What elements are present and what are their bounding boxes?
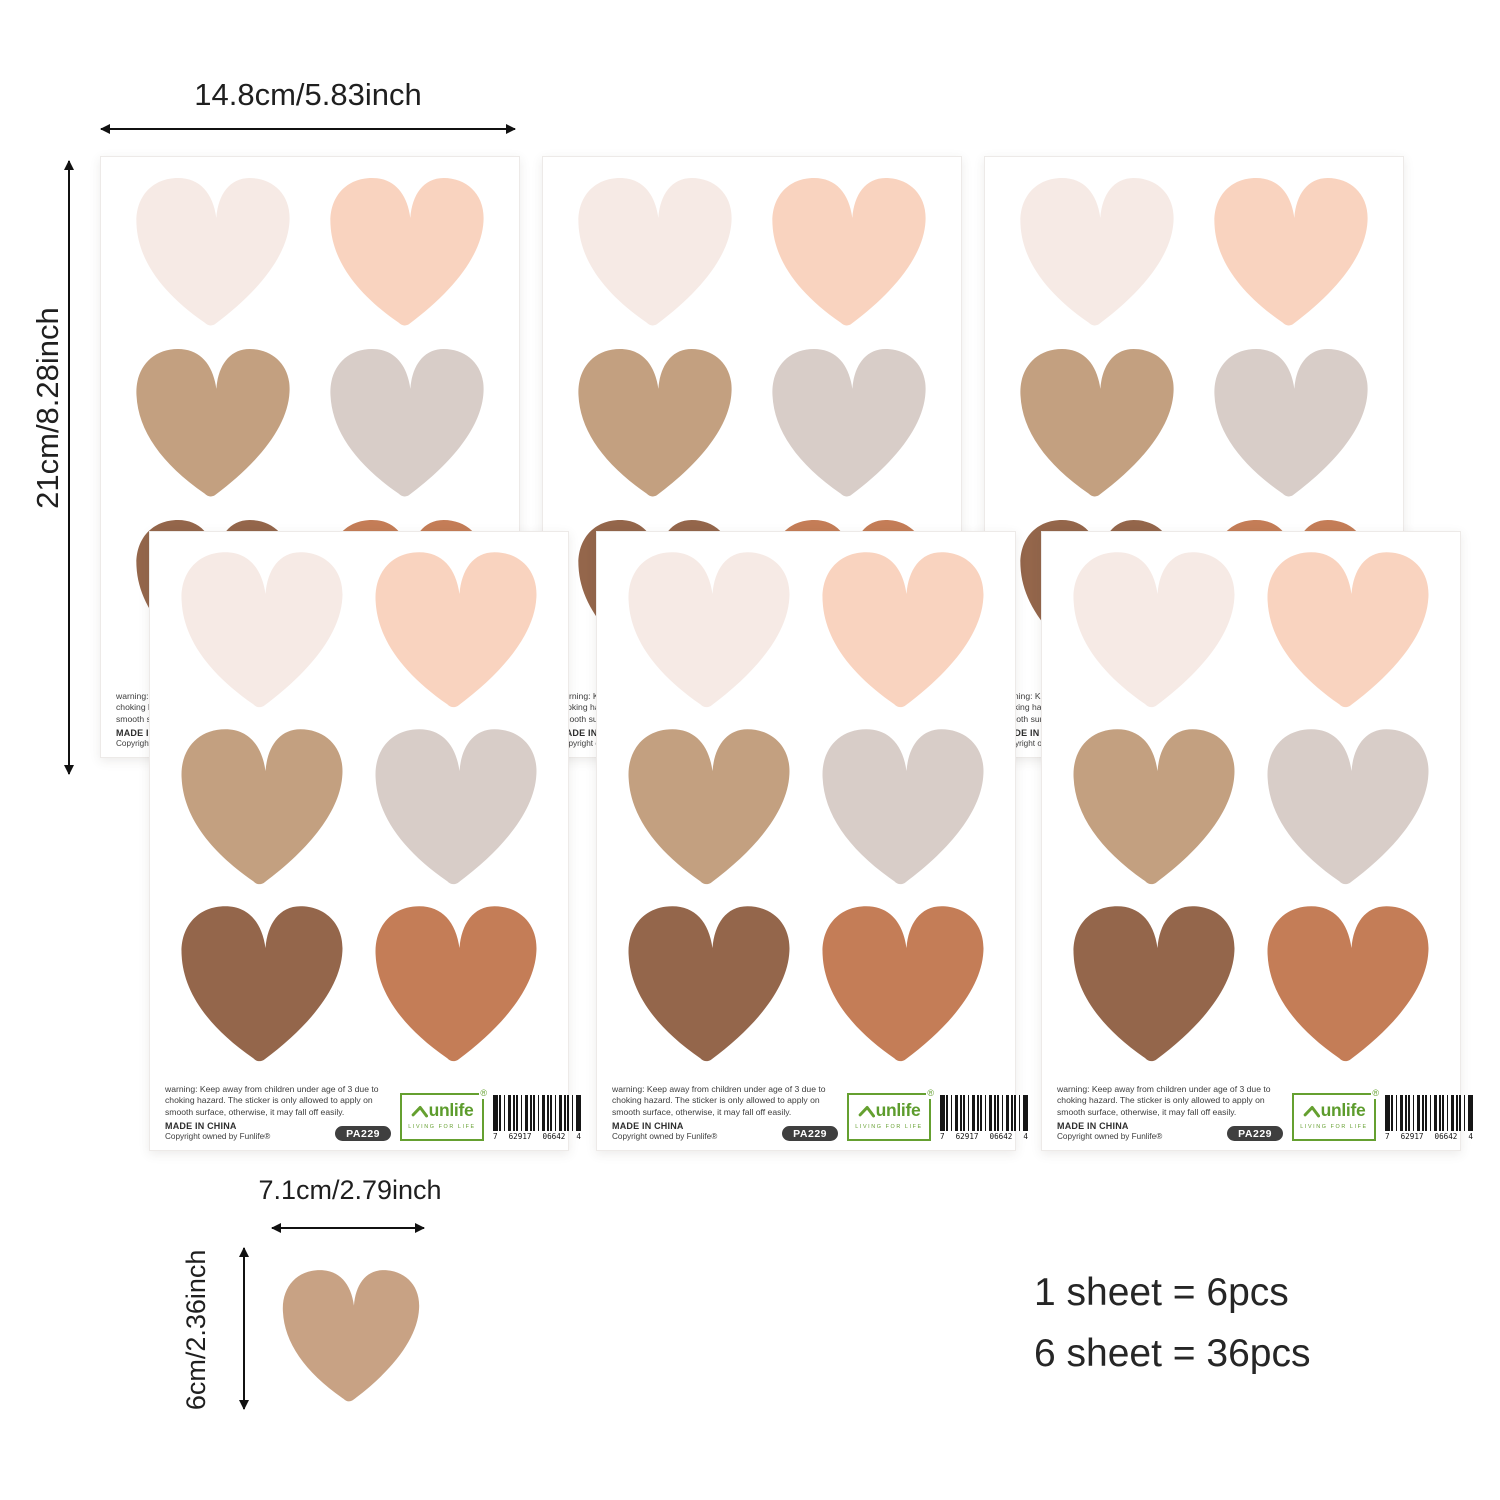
sheet-footer: warning: Keep away from children under a… [1042,1072,1460,1150]
heart-sticker-brown [1066,901,1242,1067]
heart-shape [376,906,537,1061]
made-in-china-text: MADE IN CHINA [612,1121,717,1131]
funlife-logo: ® unlife LIVING FOR LIFE [400,1093,484,1141]
barcode-digit-group: 62917 [956,1132,979,1141]
heart-sticker-cream [127,173,299,331]
heart-shape [330,178,483,325]
roof-icon [1303,1104,1320,1118]
sticker-sheet-front-3: warning: Keep away from children under a… [1041,531,1461,1151]
heart-sticker-terracotta [1260,901,1436,1067]
heart-shape [1074,553,1235,708]
copyright-text: Copyright owned by Funlife® [612,1132,717,1141]
heart-sticker-terracotta [815,901,991,1067]
heart-sticker-tan [127,344,299,502]
barcode-bars [493,1095,581,1131]
copyright-text: Copyright owned by Funlife® [165,1132,270,1141]
heart-sticker-grid [597,532,1015,1072]
heart-sticker-cream [1066,547,1242,713]
heart-shape [629,729,790,884]
heart-shape [823,906,984,1061]
heart-sticker-tan [1066,724,1242,890]
footer-text-block: warning: Keep away from children under a… [612,1084,838,1141]
heart-sticker-greige [1260,724,1436,890]
heart-shape [823,553,984,708]
barcode-digit-group: 4 [576,1132,581,1141]
registered-mark: ® [1371,1088,1380,1099]
sticker-sheet-front-2: warning: Keep away from children under a… [596,531,1016,1151]
footer-text-block: warning: Keep away from children under a… [1057,1084,1283,1141]
heart-shape [772,178,925,325]
heart-sticker-grid [150,532,568,1072]
heart-sticker-tan [174,724,350,890]
heart-shape [1020,349,1173,496]
barcode-digit-group: 4 [1468,1132,1473,1141]
barcode-digit-group: 62917 [509,1132,532,1141]
barcode-digit-group: 06642 [543,1132,566,1141]
heart-sticker-brown [621,901,797,1067]
made-in-china-text: MADE IN CHINA [1057,1121,1162,1131]
heart-sticker-greige [815,724,991,890]
sheet-height-arrow [68,161,70,774]
heart-sticker-peach [763,173,935,331]
product-image-canvas: 14.8cm/5.83inch 21cm/8.28inch warning: K… [0,0,1500,1500]
heart-sticker-tan [569,344,741,502]
heart-shape [376,729,537,884]
barcode-digit-group: 06642 [990,1132,1013,1141]
barcode-digit-group: 62917 [1401,1132,1424,1141]
heart-sticker-peach [1205,173,1377,331]
heart-shape [1268,553,1429,708]
barcode-digits: 7 62917 06642 4 [940,1132,1028,1141]
brand-name: unlife [429,1100,474,1121]
heart-sticker-peach [321,173,493,331]
heart-shape [182,553,343,708]
heart-sticker-greige [321,344,493,502]
barcode-digit-group: 7 [493,1132,498,1141]
barcode: 7 62917 06642 4 [1385,1095,1473,1141]
heart-sticker-terracotta [368,901,544,1067]
roof-icon [858,1104,875,1118]
barcode-digits: 7 62917 06642 4 [1385,1132,1473,1141]
roof-icon [411,1104,428,1118]
heart-shape [629,906,790,1061]
heart-sticker-tan [621,724,797,890]
heart-shape [182,906,343,1061]
heart-sticker-greige [763,344,935,502]
heart-shape [182,729,343,884]
barcode-bars [1385,1095,1473,1131]
heart-shape [629,553,790,708]
heart-sticker-greige [368,724,544,890]
brand-tagline: LIVING FOR LIFE [402,1124,482,1130]
funlife-logo: ® unlife LIVING FOR LIFE [1292,1093,1376,1141]
heart-sticker-brown [174,901,350,1067]
footer-text-block: warning: Keep away from children under a… [165,1084,391,1141]
heart-shape [772,349,925,496]
heart-sticker-peach [368,547,544,713]
heart-shape [823,729,984,884]
heart-shape [1074,729,1235,884]
heart-shape [1074,906,1235,1061]
brand-name: unlife [1321,1100,1366,1121]
heart-shape [578,349,731,496]
product-code-badge: PA229 [1227,1126,1283,1141]
sheet-width-label: 14.8cm/5.83inch [100,78,516,112]
heart-width-label: 7.1cm/2.79inch [238,1176,462,1206]
heart-shape [1020,178,1173,325]
heart-sticker-cream [621,547,797,713]
brand-tagline: LIVING FOR LIFE [849,1124,929,1130]
heart-height-arrow [243,1248,245,1409]
warning-text: warning: Keep away from children under a… [1057,1084,1283,1118]
origin-block: MADE IN CHINA Copyright owned by Funlife… [1057,1121,1162,1141]
heart-shape [1268,906,1429,1061]
single-heart-sticker [277,1260,425,1412]
heart-shape [136,178,289,325]
barcode-digit-group: 7 [940,1132,945,1141]
heart-shape [1214,349,1367,496]
heart-shape [376,553,537,708]
heart-sticker-peach [815,547,991,713]
sticker-sheet-front-1: warning: Keep away from children under a… [149,531,569,1151]
pack-info: 1 sheet = 6pcs 6 sheet = 36pcs [1034,1262,1310,1384]
barcode-digit-group: 4 [1023,1132,1028,1141]
sheet-width-arrow [101,128,515,130]
pack-info-line1: 1 sheet = 6pcs [1034,1262,1310,1323]
warning-text: warning: Keep away from children under a… [612,1084,838,1118]
heart-sticker-grid [1042,532,1460,1072]
heart-shape [283,1270,419,1401]
heart-shape [136,349,289,496]
origin-block: MADE IN CHINA Copyright owned by Funlife… [612,1121,717,1141]
sheet-height-label: 21cm/8.28inch [31,248,65,568]
heart-width-arrow [272,1227,424,1229]
copyright-text: Copyright owned by Funlife® [1057,1132,1162,1141]
registered-mark: ® [926,1088,935,1099]
heart-sticker-cream [1011,173,1183,331]
sheet-footer: warning: Keep away from children under a… [597,1072,1015,1150]
barcode-digit-group: 06642 [1435,1132,1458,1141]
heart-shape [330,349,483,496]
pack-info-line2: 6 sheet = 36pcs [1034,1323,1310,1384]
heart-sticker-peach [1260,547,1436,713]
sheet-footer: warning: Keep away from children under a… [150,1072,568,1150]
origin-block: MADE IN CHINA Copyright owned by Funlife… [165,1121,270,1141]
product-code-badge: PA229 [782,1126,838,1141]
heart-height-label: 6cm/2.36inch [182,1205,212,1455]
heart-shape [1214,178,1367,325]
warning-text: warning: Keep away from children under a… [165,1084,391,1118]
heart-sticker-cream [569,173,741,331]
heart-shape [1268,729,1429,884]
made-in-china-text: MADE IN CHINA [165,1121,270,1131]
barcode-digit-group: 7 [1385,1132,1390,1141]
heart-sticker-cream [174,547,350,713]
funlife-logo: ® unlife LIVING FOR LIFE [847,1093,931,1141]
heart-sticker-tan [1011,344,1183,502]
brand-tagline: LIVING FOR LIFE [1294,1124,1374,1130]
heart-sticker-greige [1205,344,1377,502]
barcode-bars [940,1095,1028,1131]
brand-name: unlife [876,1100,921,1121]
product-code-badge: PA229 [335,1126,391,1141]
heart-shape [578,178,731,325]
registered-mark: ® [479,1088,488,1099]
barcode: 7 62917 06642 4 [493,1095,581,1141]
barcode: 7 62917 06642 4 [940,1095,1028,1141]
barcode-digits: 7 62917 06642 4 [493,1132,581,1141]
